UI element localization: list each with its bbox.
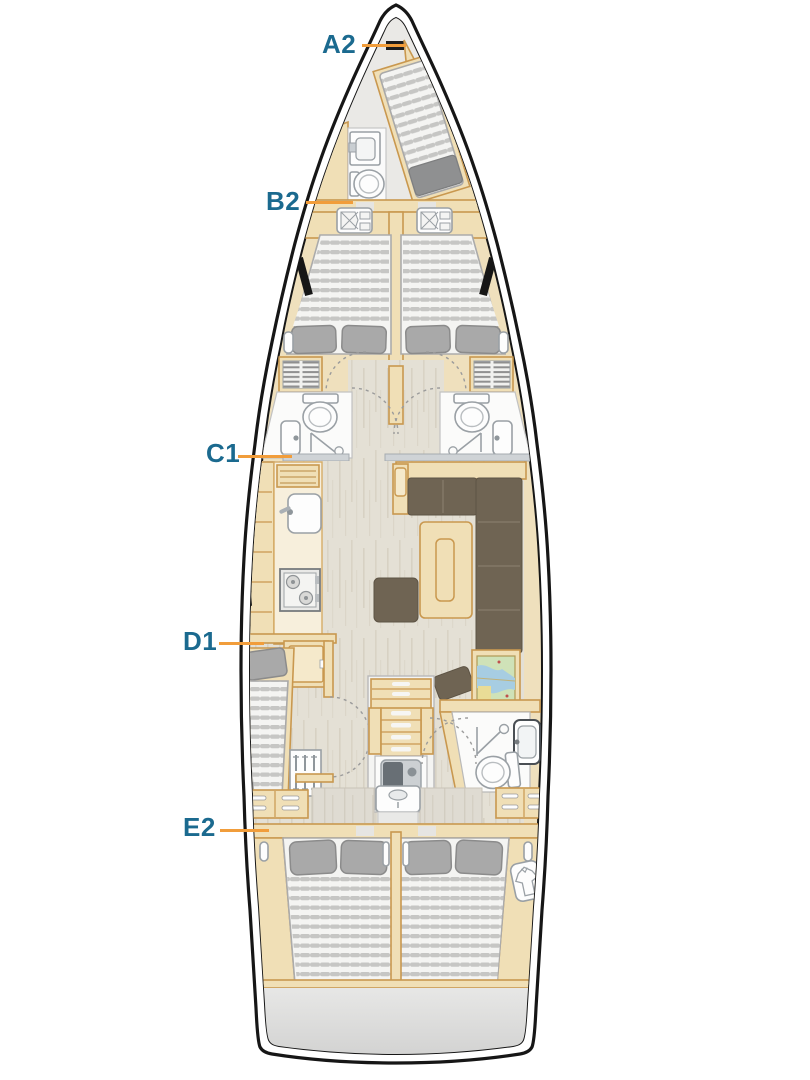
pillow-icon (404, 840, 451, 875)
salon-table (420, 522, 472, 618)
drawer-handle-icon (502, 805, 518, 809)
sink-icon (281, 421, 300, 455)
cabin-wall (296, 774, 333, 782)
toilet-icon (350, 170, 384, 198)
cabin-label-b2: B2 (266, 188, 300, 214)
leader-line-e2 (220, 829, 269, 832)
sofa-bench (408, 478, 477, 515)
starboard-locker-vents (470, 357, 513, 392)
aft-panel (312, 788, 374, 826)
leader-line-c1 (238, 455, 292, 458)
bow-bathroom (348, 128, 386, 206)
cabin-label-a2: A2 (322, 31, 356, 57)
sink-icon (349, 132, 380, 165)
galley-shelf (277, 465, 319, 487)
stairs-icon (369, 679, 433, 756)
pillow-icon (340, 840, 387, 875)
aft-port-berth (283, 838, 392, 984)
latch-icon (260, 842, 268, 861)
pillow-icon (406, 325, 451, 354)
latch-icon (524, 842, 532, 861)
pillow-icon (244, 647, 288, 680)
leader-line-a2 (362, 44, 406, 47)
aft-cabins (250, 832, 545, 986)
bulkhead-bar (283, 454, 349, 461)
aft-panel (420, 788, 482, 826)
doorway-gap (418, 826, 436, 836)
aft-starboard-berth (400, 838, 509, 984)
bulkhead-bar (385, 454, 533, 461)
cabin-wall (324, 641, 333, 697)
sink-icon (376, 786, 420, 812)
toilet-icon (303, 394, 338, 432)
leader-line-b2 (306, 201, 353, 204)
doorway-gap (356, 826, 374, 836)
toilet-icon (454, 394, 489, 432)
pillow-icon (455, 840, 503, 875)
berth-handle (284, 332, 293, 353)
vanity-sink-icon (417, 208, 452, 233)
cabin-label-e2: E2 (183, 814, 216, 840)
drawer-handle-icon (502, 794, 518, 798)
vanity-sink-icon (337, 208, 372, 233)
pillow-icon (342, 325, 387, 354)
yacht-floorplan-page: A2 B2 C1 D1 E2 (0, 0, 810, 1080)
salon-back-trim (396, 462, 526, 479)
berth-handle (403, 842, 409, 866)
mattress (400, 876, 505, 982)
stove-icon (280, 569, 320, 611)
pillow-icon (292, 325, 337, 354)
aft-center-wall (391, 832, 401, 986)
galley-counter (274, 462, 322, 642)
sofa-seat (374, 578, 418, 622)
chart-map-icon (477, 656, 515, 703)
leader-line-d1 (219, 642, 264, 645)
pillow-icon (456, 325, 501, 354)
berth-handle (383, 842, 389, 866)
starboard-bathroom (440, 392, 531, 458)
cabin-label-d1: D1 (183, 628, 217, 654)
port-bathroom (261, 392, 352, 458)
port-locker-vents (279, 357, 322, 392)
trim-panel (395, 468, 406, 496)
drawer-handle-icon (282, 806, 299, 810)
sofa-bench-long (476, 478, 522, 653)
mattress (287, 876, 392, 982)
drawer-handle-icon (282, 796, 299, 800)
pillow-icon (289, 840, 337, 875)
berth-handle (499, 332, 508, 353)
deck-plan-svg (0, 0, 810, 1080)
sink-icon (493, 421, 512, 455)
corridor-partition (389, 366, 403, 424)
cabin-label-c1: C1 (206, 440, 240, 466)
